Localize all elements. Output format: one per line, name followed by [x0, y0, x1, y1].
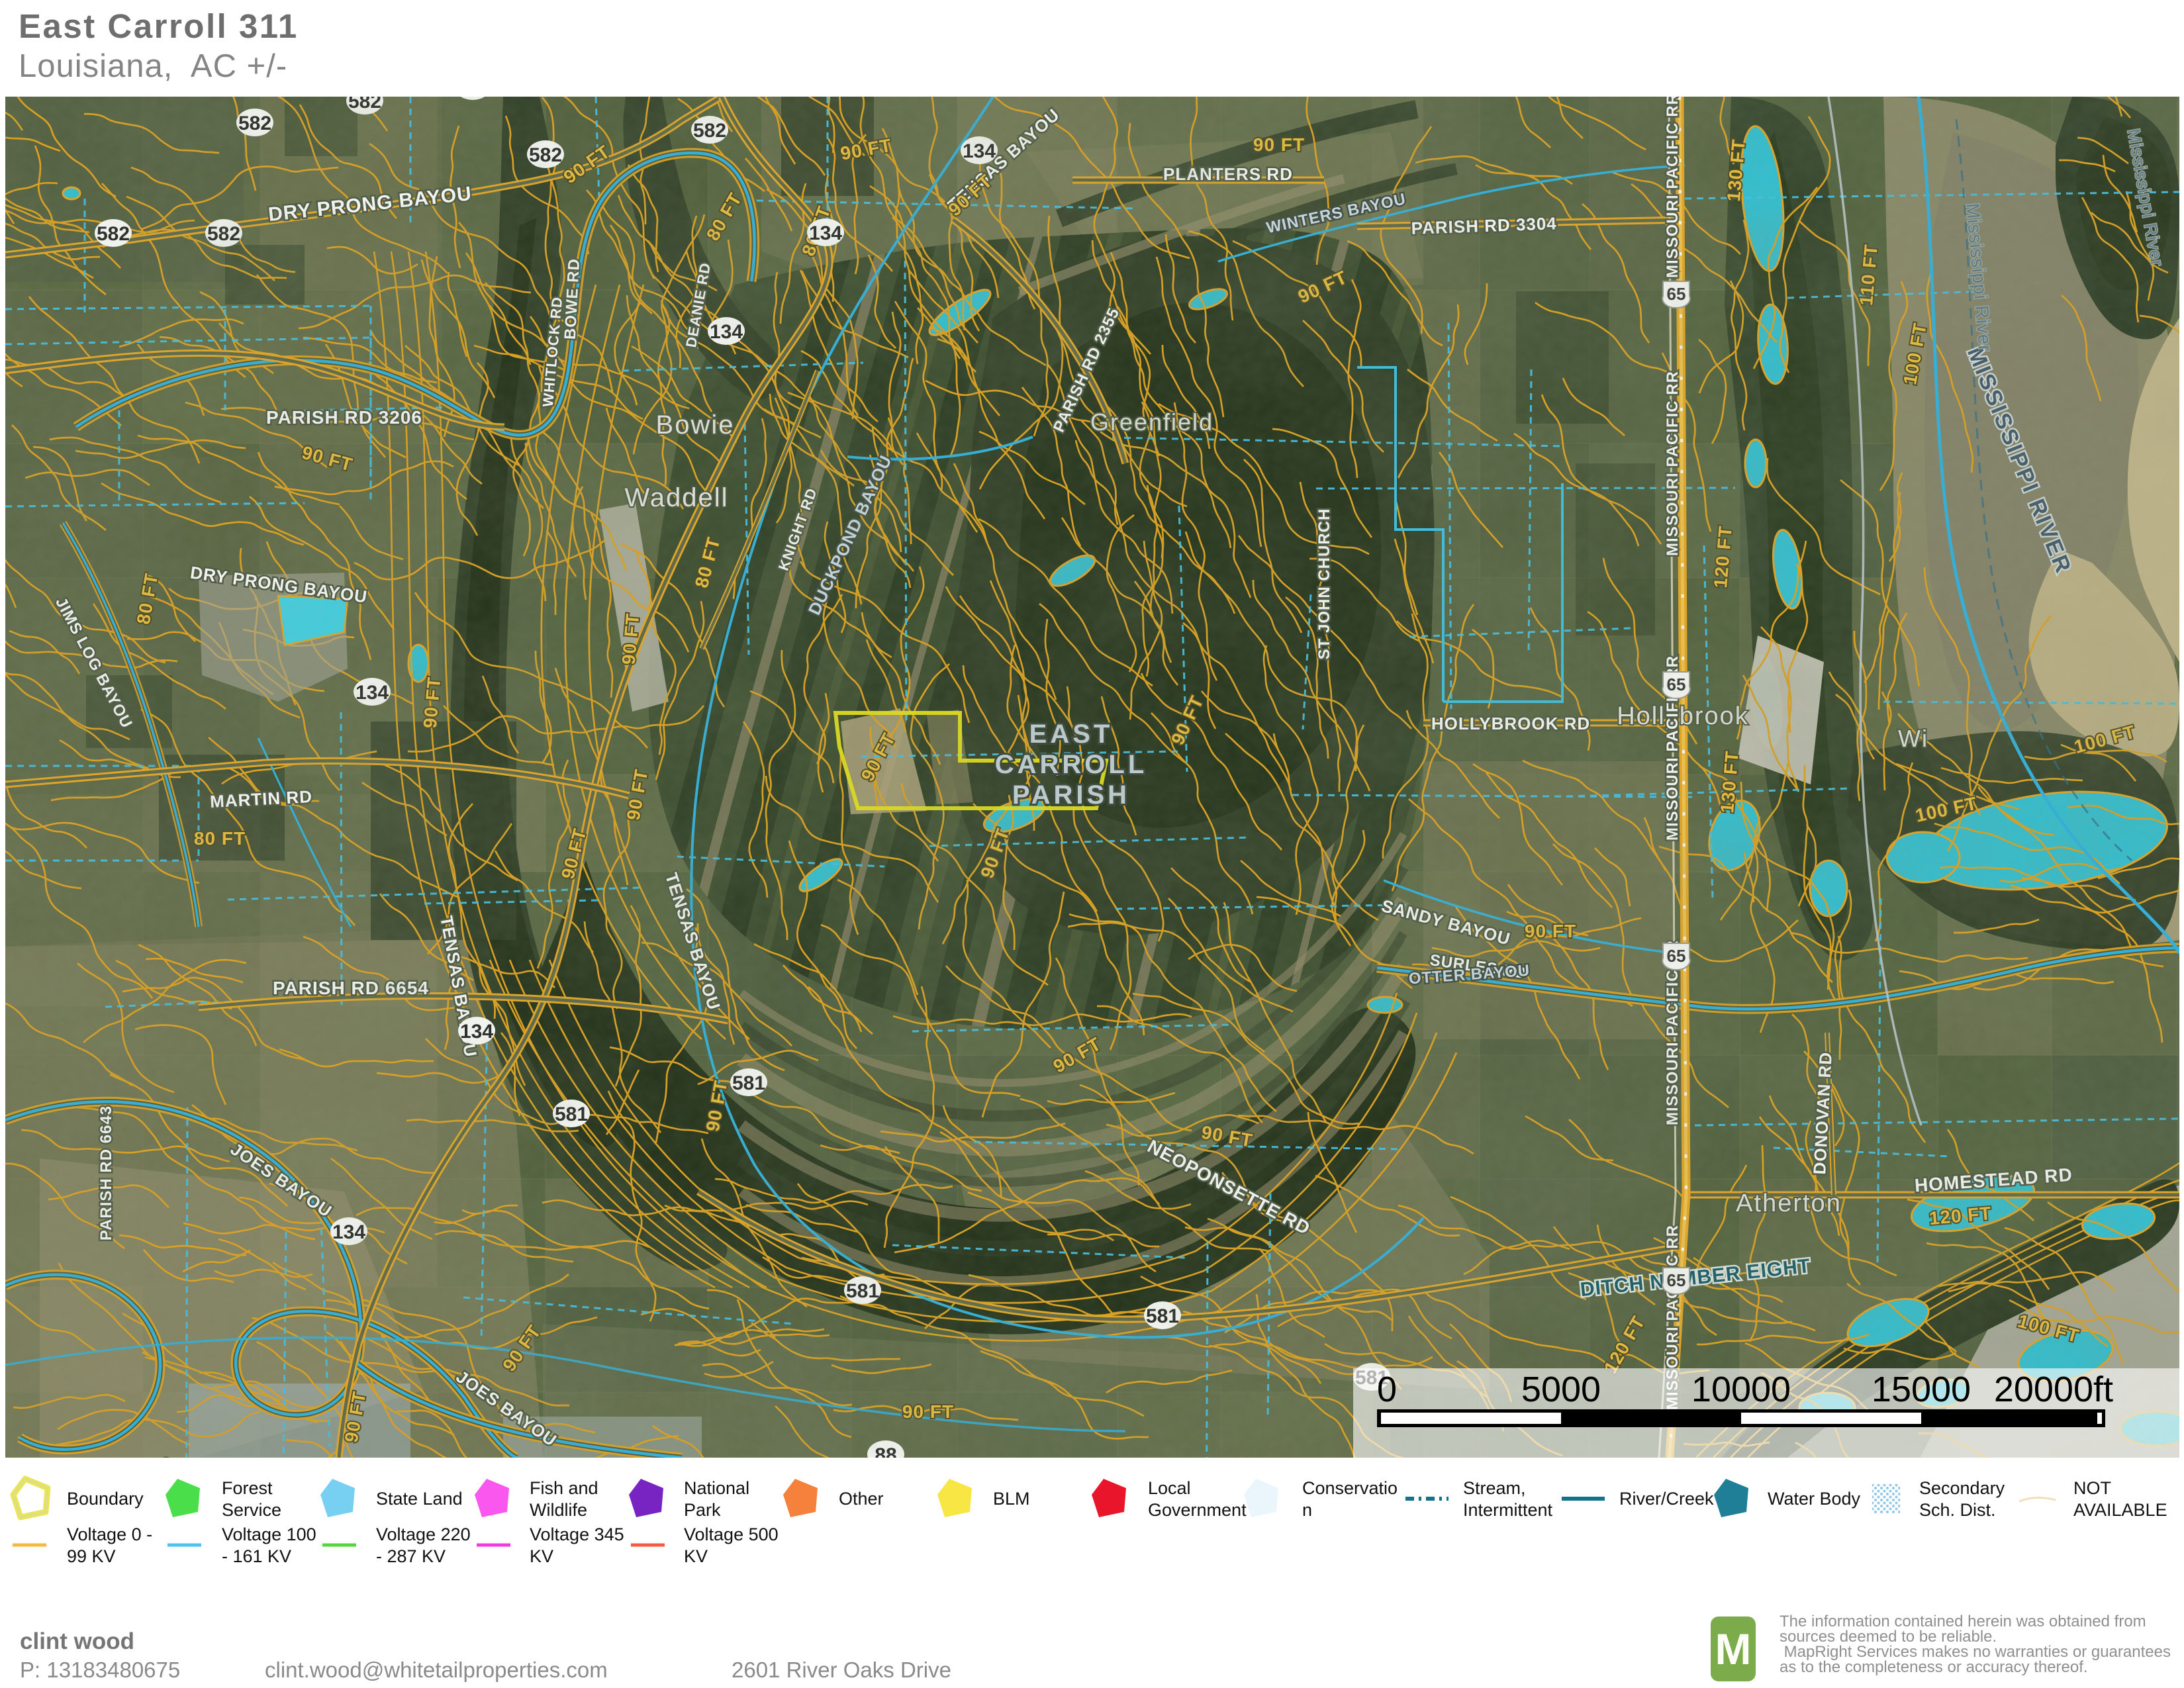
- svg-text:- 161 KV: - 161 KV: [222, 1546, 291, 1566]
- svg-text:River/Creek: River/Creek: [1619, 1489, 1714, 1509]
- svg-text:Boundary: Boundary: [67, 1489, 144, 1509]
- svg-text:Voltage 500: Voltage 500: [684, 1524, 779, 1544]
- svg-text:582: 582: [456, 76, 489, 98]
- svg-text:Water Body: Water Body: [1768, 1489, 1861, 1509]
- svg-text:- 287 KV: - 287 KV: [376, 1546, 446, 1566]
- svg-text:Voltage 0 -: Voltage 0 -: [67, 1524, 152, 1544]
- svg-text:0: 0: [1377, 1370, 1397, 1409]
- svg-text:99 KV: 99 KV: [67, 1546, 116, 1566]
- svg-text:Local: Local: [1148, 1478, 1191, 1498]
- svg-text:15000: 15000: [1872, 1370, 1971, 1409]
- svg-text:NOT: NOT: [2073, 1478, 2111, 1498]
- svg-text:Stream,: Stream,: [1463, 1478, 1526, 1498]
- svg-text:Service: Service: [222, 1500, 281, 1520]
- svg-text:n: n: [1302, 1500, 1312, 1520]
- svg-text:AVAILABLE: AVAILABLE: [2073, 1500, 2167, 1520]
- svg-text:Voltage 345: Voltage 345: [530, 1524, 624, 1544]
- svg-text:Other: Other: [839, 1489, 884, 1509]
- svg-text:20000ft: 20000ft: [1994, 1370, 2113, 1409]
- svg-text:Government: Government: [1148, 1500, 1247, 1520]
- svg-text:Secondary: Secondary: [1919, 1478, 2005, 1498]
- svg-text:BLM: BLM: [993, 1489, 1030, 1509]
- svg-text:10000: 10000: [1691, 1370, 1791, 1409]
- svg-text:National: National: [684, 1478, 749, 1498]
- svg-text:KV: KV: [684, 1546, 708, 1566]
- svg-text:Fish and: Fish and: [530, 1478, 598, 1498]
- svg-text:Intermittent: Intermittent: [1463, 1500, 1553, 1520]
- svg-text:Wildlife: Wildlife: [530, 1500, 587, 1520]
- svg-text:Voltage 100: Voltage 100: [222, 1524, 316, 1544]
- svg-text:Conservatio: Conservatio: [1302, 1478, 1398, 1498]
- svg-text:Forest: Forest: [222, 1478, 273, 1498]
- svg-text:Voltage 220: Voltage 220: [376, 1524, 471, 1544]
- svg-text:KV: KV: [530, 1546, 553, 1566]
- svg-text:5000: 5000: [1521, 1370, 1601, 1409]
- svg-text:State Land: State Land: [376, 1489, 463, 1509]
- svg-text:Sch. Dist.: Sch. Dist.: [1919, 1500, 1996, 1520]
- svg-text:Park: Park: [684, 1500, 721, 1520]
